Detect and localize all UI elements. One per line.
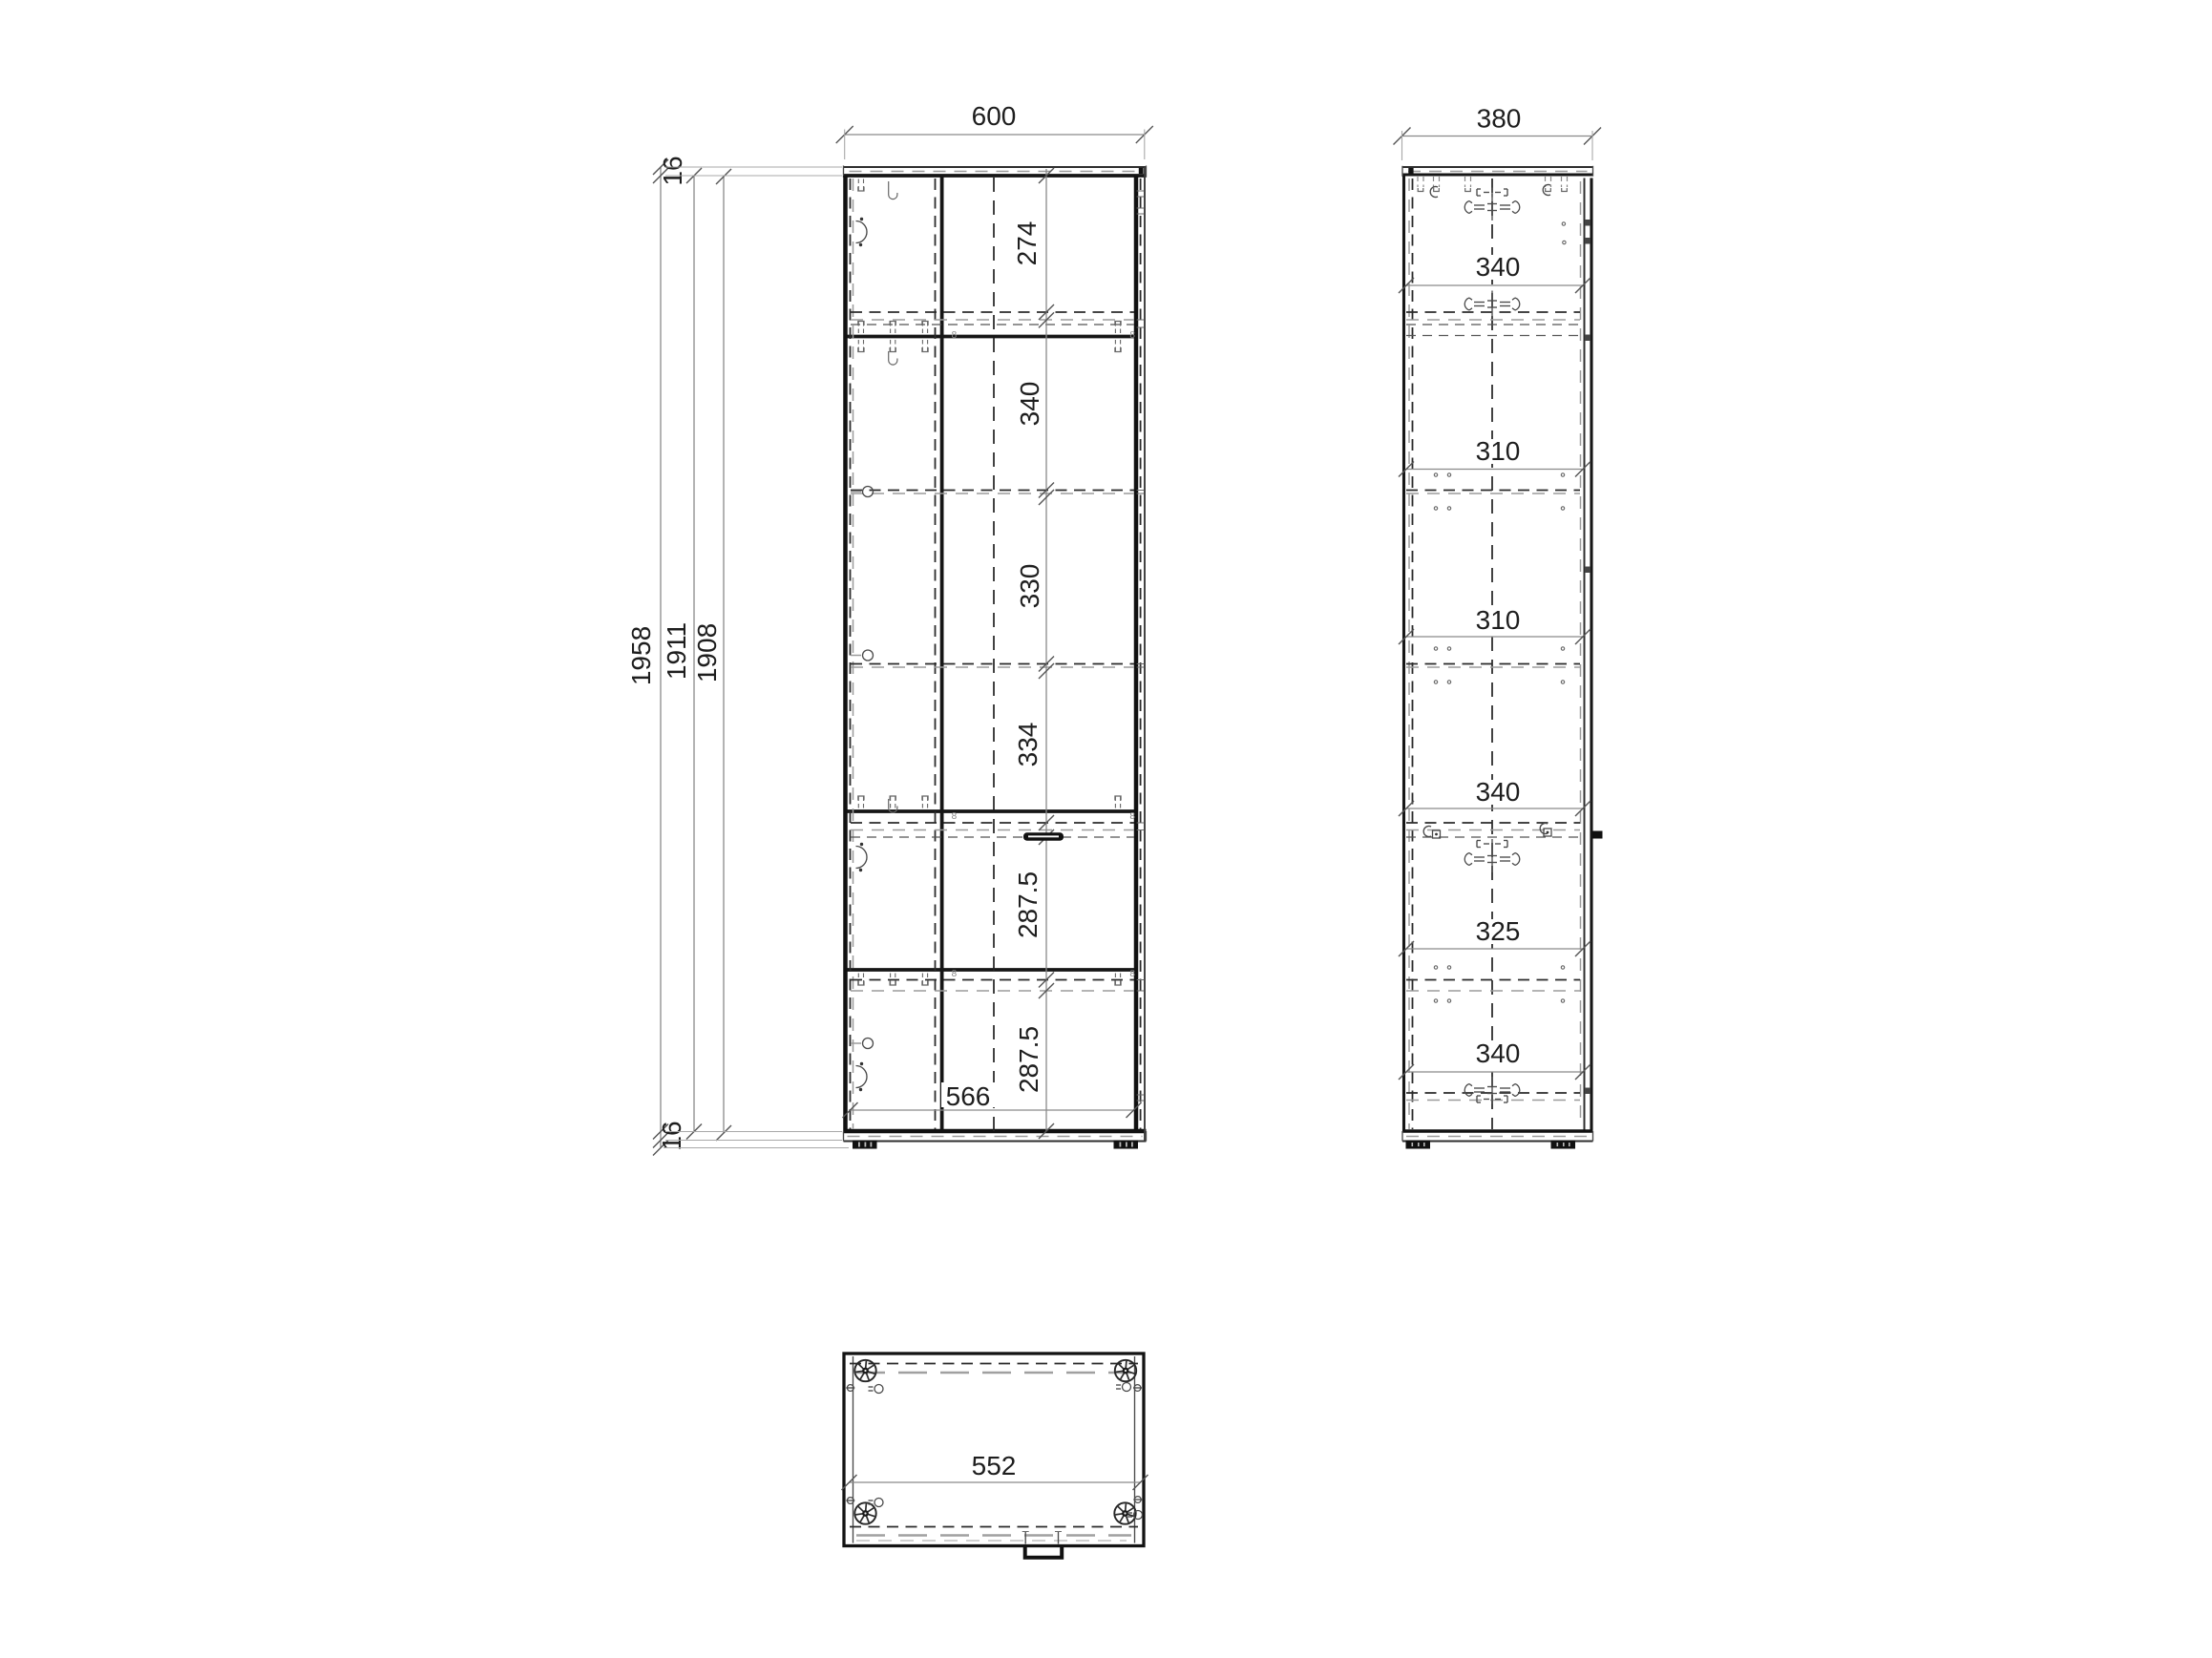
- svg-text:16: 16: [658, 156, 687, 185]
- svg-text:8: 8: [952, 811, 958, 822]
- svg-text:552: 552: [972, 1451, 1017, 1480]
- svg-text:8: 8: [1129, 330, 1135, 341]
- svg-text:340: 340: [1476, 777, 1521, 807]
- svg-text:1908: 1908: [692, 623, 722, 682]
- svg-text:566: 566: [946, 1081, 991, 1111]
- svg-text:325: 325: [1476, 916, 1521, 946]
- svg-text:330: 330: [1015, 564, 1044, 609]
- svg-text:310: 310: [1476, 436, 1521, 466]
- svg-text:8: 8: [952, 330, 958, 341]
- svg-text:1958: 1958: [626, 626, 656, 685]
- svg-text:8: 8: [1129, 969, 1135, 979]
- svg-text:310: 310: [1476, 605, 1521, 635]
- svg-text:287.5: 287.5: [1013, 871, 1043, 938]
- svg-text:287.5: 287.5: [1014, 1026, 1043, 1093]
- svg-text:274: 274: [1012, 221, 1042, 266]
- svg-text:340: 340: [1476, 1039, 1521, 1068]
- svg-text:8: 8: [952, 969, 958, 979]
- svg-text:340: 340: [1476, 252, 1521, 282]
- svg-text:8: 8: [1129, 811, 1135, 822]
- svg-text:1911: 1911: [662, 622, 691, 680]
- svg-text:340: 340: [1015, 382, 1044, 427]
- svg-text:380: 380: [1477, 104, 1522, 134]
- svg-text:334: 334: [1013, 723, 1043, 767]
- svg-text:600: 600: [972, 101, 1017, 131]
- svg-text:16: 16: [657, 1121, 686, 1150]
